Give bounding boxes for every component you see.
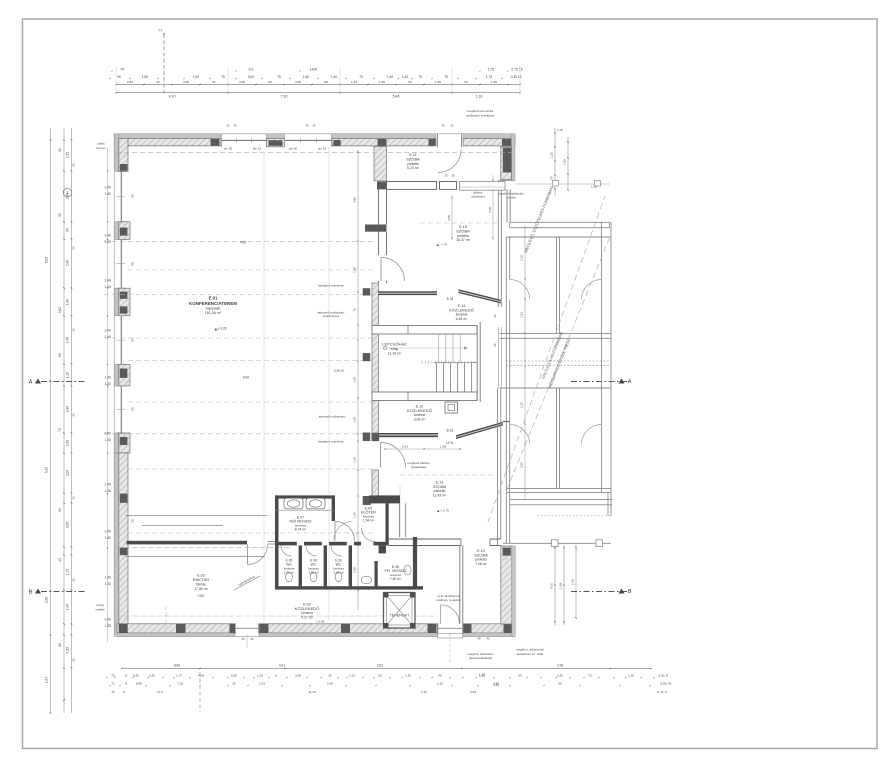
- svg-text:75: 75: [120, 68, 124, 72]
- svg-text:1,35: 1,35: [550, 152, 554, 158]
- svg-text:6,90, 41: 6,90, 41: [660, 682, 671, 686]
- svg-text:1,10: 1,10: [479, 673, 485, 677]
- svg-text:1,40: 1,40: [105, 240, 112, 244]
- svg-text:LÉPCSŐHÁZ: LÉPCSŐHÁZ: [382, 342, 407, 347]
- svg-text:75: 75: [111, 690, 115, 694]
- svg-text:1,76: 1,76: [557, 128, 563, 132]
- svg-text:CSK: CSK: [198, 594, 205, 598]
- svg-text:25: 25: [441, 124, 445, 128]
- svg-text:50: 50: [268, 80, 272, 84]
- svg-text:B.16: B.16: [447, 428, 454, 432]
- svg-text:F1: F1: [159, 29, 163, 33]
- svg-text:2,10: 2,10: [571, 579, 575, 585]
- svg-text:1,50: 1,50: [193, 75, 199, 79]
- svg-text:7,30: 7,30: [281, 95, 288, 99]
- svg-text:1: 1: [67, 191, 69, 195]
- svg-text:1,55: 1,55: [66, 152, 70, 158]
- svg-text:1,50: 1,50: [405, 674, 411, 678]
- svg-text:8: 8: [123, 690, 125, 694]
- svg-text:50: 50: [378, 674, 382, 678]
- svg-text:4,31: 4,31: [279, 664, 285, 668]
- svg-text:4,00: 4,00: [198, 674, 204, 678]
- svg-text:4,50: 4,50: [240, 241, 246, 245]
- svg-text:12 %: 12 %: [446, 441, 453, 445]
- svg-text:1,50: 1,50: [257, 674, 263, 678]
- svg-text:94: 94: [464, 80, 468, 84]
- svg-text:5,42: 5,42: [45, 467, 49, 473]
- svg-text:55: 55: [58, 213, 62, 217]
- svg-text:1,02 m²: 1,02 m²: [333, 571, 344, 575]
- svg-text:5,23 m²: 5,23 m²: [407, 166, 420, 170]
- svg-text:2,65: 2,65: [66, 522, 70, 528]
- svg-text:80: 80: [58, 643, 62, 647]
- svg-text:0,60: 0,60: [133, 674, 139, 678]
- svg-text:1,50: 1,50: [387, 75, 393, 79]
- svg-text:2,40: 2,40: [105, 483, 112, 487]
- svg-text:1,91: 1,91: [421, 690, 427, 694]
- svg-text:1,40: 1,40: [402, 75, 408, 79]
- svg-text:E.06: E.06: [392, 565, 399, 569]
- svg-text:30: 30: [72, 413, 76, 417]
- svg-text:90: 90: [117, 75, 121, 79]
- svg-text:35: 35: [328, 674, 332, 678]
- svg-text:161,06 m²: 161,06 m²: [205, 311, 222, 315]
- svg-text:B: B: [29, 590, 33, 596]
- svg-text:1,75: 1,75: [486, 75, 492, 79]
- svg-text:3,06: 3,06: [239, 80, 245, 84]
- svg-text:75: 75: [588, 674, 592, 678]
- svg-text:25: 25: [233, 124, 237, 128]
- svg-text:25: 25: [226, 124, 230, 128]
- svg-text:2,60: 2,60: [488, 207, 492, 213]
- svg-text:2,40: 2,40: [66, 337, 70, 343]
- svg-text:30: 30: [72, 578, 76, 582]
- svg-text:2,40: 2,40: [105, 576, 112, 580]
- svg-text:1,77: 1,77: [176, 674, 182, 678]
- svg-text:11,33 m²: 11,33 m²: [388, 351, 402, 355]
- svg-text:75: 75: [353, 308, 357, 312]
- svg-text:B: B: [628, 589, 632, 595]
- svg-text:2,40: 2,40: [105, 329, 112, 333]
- svg-text:3,00: 3,00: [248, 75, 254, 79]
- svg-text:épületrész sz. oldal: épületrész sz. oldal: [517, 652, 544, 656]
- svg-text:2,05: 2,05: [447, 215, 451, 221]
- svg-text:meglévő szomszéd: meglévő szomszéd: [467, 109, 494, 113]
- svg-text:90: 90: [131, 262, 135, 266]
- svg-text:51: 51: [212, 80, 216, 84]
- svg-text:1,00: 1,00: [66, 440, 70, 446]
- svg-text:30: 30: [72, 163, 76, 167]
- svg-text:E.04: E.04: [365, 506, 372, 510]
- svg-text:kiadópor cserélése: kiadópor cserélése: [318, 284, 344, 288]
- svg-text:cseréje: cseréje: [506, 196, 516, 200]
- svg-text:30: 30: [72, 246, 76, 250]
- svg-text:5,46: 5,46: [393, 95, 400, 99]
- svg-text:2,56: 2,56: [45, 597, 49, 603]
- svg-text:45: 45: [250, 637, 254, 641]
- svg-text:1,50: 1,50: [557, 674, 563, 678]
- svg-text:1,40: 1,40: [105, 536, 112, 540]
- svg-text:75: 75: [277, 75, 281, 79]
- svg-text:16,37 m²: 16,37 m²: [456, 238, 471, 242]
- svg-text:2,10: 2,10: [520, 402, 524, 408]
- svg-text:3,00: 3,00: [295, 674, 301, 678]
- svg-text:1,23: 1,23: [259, 682, 265, 686]
- svg-text:meglévő, átépítendő: meglévő, átépítendő: [516, 648, 544, 652]
- svg-text:11,43 m²: 11,43 m²: [433, 493, 447, 497]
- svg-text:43: 43: [58, 558, 62, 562]
- svg-text:90: 90: [550, 176, 554, 180]
- svg-text:3,06: 3,06: [295, 80, 301, 84]
- svg-text:áttemelő nyílászáró: áttemelő nyílászáró: [319, 415, 346, 419]
- svg-text:30: 30: [72, 328, 76, 332]
- svg-text:1,50: 1,50: [303, 75, 309, 79]
- svg-text:35: 35: [518, 674, 522, 678]
- svg-text:am 10: am 10: [318, 147, 327, 151]
- svg-text:45: 45: [493, 343, 497, 346]
- svg-text:45: 45: [486, 637, 490, 641]
- svg-text:2,00: 2,00: [66, 470, 70, 476]
- svg-text:2,40: 2,40: [105, 432, 112, 436]
- svg-text:E.01: E.01: [209, 296, 218, 301]
- svg-text:2,40: 2,40: [105, 279, 112, 283]
- svg-text:25: 25: [305, 124, 309, 128]
- svg-text:2,10: 2,10: [520, 255, 524, 261]
- svg-text:fal met: fal met: [97, 146, 106, 150]
- svg-text:KONFERENCIATEREM: KONFERENCIATEREM: [189, 301, 237, 306]
- svg-text:1,99: 1,99: [559, 583, 563, 589]
- svg-text:65: 65: [58, 353, 62, 357]
- svg-text:1,43: 1,43: [351, 80, 357, 84]
- svg-text:1,45: 1,45: [66, 604, 70, 610]
- svg-text:5,0: 5,0: [249, 68, 254, 72]
- svg-text:szélfogó, új ajtóval: szélfogó, új ajtóval: [436, 598, 461, 602]
- svg-text:1,94 m²: 1,94 m²: [363, 519, 375, 523]
- svg-text:9,62: 9,62: [58, 307, 62, 313]
- svg-text:35: 35: [445, 174, 448, 178]
- svg-text:E.07: E.07: [297, 515, 304, 519]
- svg-text:TEHERLIFT: TEHERLIFT: [390, 614, 411, 618]
- svg-text:1,40: 1,40: [105, 382, 112, 386]
- svg-text:45: 45: [58, 148, 62, 152]
- svg-text:8,40: 8,40: [136, 682, 142, 686]
- svg-text:30: 30: [72, 658, 76, 662]
- svg-text:2,20: 2,20: [437, 682, 443, 686]
- svg-text:75: 75: [359, 75, 363, 79]
- svg-text:2,84: 2,84: [470, 690, 476, 694]
- svg-text:kőlap: kőlap: [391, 347, 399, 351]
- svg-text:1,98: 1,98: [440, 444, 446, 448]
- svg-text:5,17 m²: 5,17 m²: [301, 615, 314, 619]
- svg-text:B 16: B 16: [447, 297, 454, 301]
- svg-text:1,54: 1,54: [45, 677, 49, 683]
- svg-text:30: 30: [131, 519, 135, 523]
- svg-text:1,61: 1,61: [520, 312, 524, 318]
- svg-text:90: 90: [131, 338, 135, 342]
- svg-text:2,40: 2,40: [105, 530, 112, 534]
- svg-text:90: 90: [438, 674, 442, 678]
- svg-text:4,10: 4,10: [169, 95, 176, 99]
- svg-text:6,45 m²: 6,45 m²: [456, 317, 469, 321]
- svg-text:1,50: 1,50: [142, 75, 148, 79]
- svg-text:2,41: 2,41: [402, 444, 408, 448]
- svg-text:0,84: 0,84: [127, 80, 133, 84]
- svg-text:30: 30: [72, 496, 76, 500]
- svg-text:1,75: 1,75: [488, 68, 495, 72]
- svg-text:nyílászáró szerkezet: nyílászáró szerkezet: [466, 114, 494, 118]
- svg-text:12,4: 12,4: [157, 690, 163, 694]
- svg-text:2,40: 2,40: [105, 376, 112, 380]
- svg-text:1,30: 1,30: [628, 674, 634, 678]
- svg-text:1,20: 1,20: [563, 159, 567, 165]
- svg-text:± 0,00: ± 0,00: [217, 327, 227, 331]
- svg-text:2,20: 2,20: [353, 567, 357, 573]
- svg-text:1,23: 1,23: [349, 674, 355, 678]
- svg-text:+ 1,75: + 1,75: [440, 508, 449, 512]
- svg-text:1,40: 1,40: [105, 438, 112, 442]
- svg-text:2,40: 2,40: [66, 406, 70, 412]
- svg-text:1,50: 1,50: [435, 80, 441, 84]
- svg-text:hajópadló: hajópadló: [206, 307, 221, 311]
- svg-text:kiadópor cserélése: kiadópor cserélése: [318, 440, 344, 444]
- svg-text:8,74 m²: 8,74 m²: [295, 528, 307, 532]
- svg-text:32: 32: [156, 80, 160, 84]
- svg-text:RAKTÁR: RAKTÁR: [193, 577, 209, 582]
- svg-text:95: 95: [58, 508, 62, 512]
- svg-text:A: A: [628, 379, 632, 385]
- svg-text:1,40: 1,40: [105, 285, 112, 289]
- svg-text:2,40: 2,40: [105, 186, 112, 190]
- svg-text:1,30: 1,30: [491, 80, 497, 84]
- svg-text:1,50: 1,50: [379, 80, 385, 84]
- svg-text:1,40: 1,40: [105, 192, 112, 196]
- svg-text:25: 25: [450, 124, 454, 128]
- svg-text:75: 75: [418, 75, 422, 79]
- svg-text:50: 50: [558, 682, 562, 686]
- svg-text:11,76: 11,76: [308, 690, 316, 694]
- svg-text:1,40: 1,40: [105, 489, 112, 493]
- svg-text:2,05: 2,05: [520, 462, 524, 468]
- svg-text:85: 85: [66, 228, 70, 232]
- svg-text:75: 75: [444, 75, 448, 79]
- svg-text:45: 45: [477, 637, 481, 641]
- svg-text:7,60 m²: 7,60 m²: [390, 577, 402, 581]
- svg-text:6,30, 8: 6,30, 8: [658, 674, 668, 678]
- svg-text:90: 90: [131, 194, 135, 198]
- svg-text:8: 8: [125, 674, 127, 678]
- svg-text:40: 40: [493, 314, 497, 317]
- svg-text:35: 35: [232, 682, 236, 686]
- svg-text:5,05: 5,05: [45, 257, 49, 263]
- svg-text:75: 75: [58, 428, 62, 432]
- svg-text:1100,60: 1100,60: [334, 369, 345, 373]
- svg-text:7,30: 7,30: [177, 682, 183, 686]
- svg-text:45: 45: [241, 637, 245, 641]
- svg-text:per 30: per 30: [224, 147, 233, 151]
- svg-text:75: 75: [221, 75, 225, 79]
- svg-text:+ 0,45: + 0,45: [316, 620, 325, 624]
- svg-text:25: 25: [312, 124, 316, 128]
- svg-text:2,40: 2,40: [105, 234, 112, 238]
- svg-text:2,40: 2,40: [105, 618, 112, 622]
- svg-text:1,05: 1,05: [353, 417, 357, 423]
- svg-text:szerkezetek: szerkezetek: [323, 314, 340, 318]
- svg-text:ajtóval felújítandó: ajtóval felújítandó: [469, 656, 492, 660]
- svg-text:1,30: 1,30: [476, 95, 483, 99]
- svg-text:1,10: 1,10: [66, 372, 70, 378]
- svg-text:1,60: 1,60: [353, 377, 357, 383]
- svg-text:9,62: 9,62: [377, 664, 383, 668]
- svg-text:1,45: 1,45: [353, 512, 357, 518]
- svg-text:1,50: 1,50: [149, 674, 155, 678]
- svg-text:1,65: 1,65: [66, 647, 70, 653]
- svg-text:4,85: 4,85: [353, 197, 357, 203]
- svg-text:1,40: 1,40: [105, 624, 112, 628]
- svg-text:befalazása: befalazása: [411, 465, 426, 469]
- svg-text:padkái: padkái: [96, 607, 105, 611]
- svg-text:0,50: 0,50: [231, 674, 237, 678]
- svg-text:1,50: 1,50: [331, 75, 337, 79]
- svg-text:75: 75: [111, 674, 115, 678]
- svg-text:9,60: 9,60: [243, 376, 249, 380]
- svg-text:8,56: 8,56: [174, 664, 180, 668]
- svg-text:4,45: 4,45: [493, 683, 499, 687]
- svg-text:1430: 1430: [310, 68, 318, 72]
- svg-text:1,40: 1,40: [105, 582, 112, 586]
- svg-text:35: 35: [452, 174, 455, 178]
- svg-text:2,98: 2,98: [557, 664, 563, 668]
- svg-text:nyílászáró: nyílászáró: [471, 194, 485, 198]
- svg-text:7,06 m²: 7,06 m²: [475, 562, 488, 566]
- svg-text:4,10: 4,10: [550, 583, 554, 589]
- svg-text:1,30: 1,30: [353, 267, 357, 273]
- svg-text:0,75 15: 0,75 15: [511, 68, 522, 72]
- svg-text:53: 53: [408, 80, 412, 84]
- svg-text:3,06: 3,06: [183, 80, 189, 84]
- svg-text:17,80 m²: 17,80 m²: [194, 587, 209, 591]
- svg-text:2,40: 2,40: [66, 260, 70, 266]
- svg-text:1,30: 1,30: [353, 457, 357, 463]
- svg-text:1,40: 1,40: [66, 299, 70, 305]
- svg-text:1,02 m²: 1,02 m²: [284, 571, 295, 575]
- svg-text:per 30: per 30: [289, 147, 298, 151]
- svg-text:am 10: am 10: [253, 147, 262, 151]
- svg-text:8: 8: [125, 682, 127, 686]
- svg-text:88: 88: [324, 80, 328, 84]
- svg-text:1,02 m²: 1,02 m²: [308, 571, 319, 575]
- svg-text:A: A: [29, 380, 33, 386]
- svg-text:1,75: 1,75: [66, 569, 70, 575]
- svg-text:8: 8: [275, 674, 277, 678]
- svg-text:+ 75: + 75: [441, 242, 447, 246]
- svg-text:90: 90: [131, 407, 135, 411]
- svg-text:5,94: 5,94: [327, 682, 333, 686]
- svg-text:3,06 m²: 3,06 m²: [414, 417, 427, 421]
- svg-text:75: 75: [111, 682, 115, 686]
- svg-text:8, 11, 5: 8, 11, 5: [657, 690, 667, 694]
